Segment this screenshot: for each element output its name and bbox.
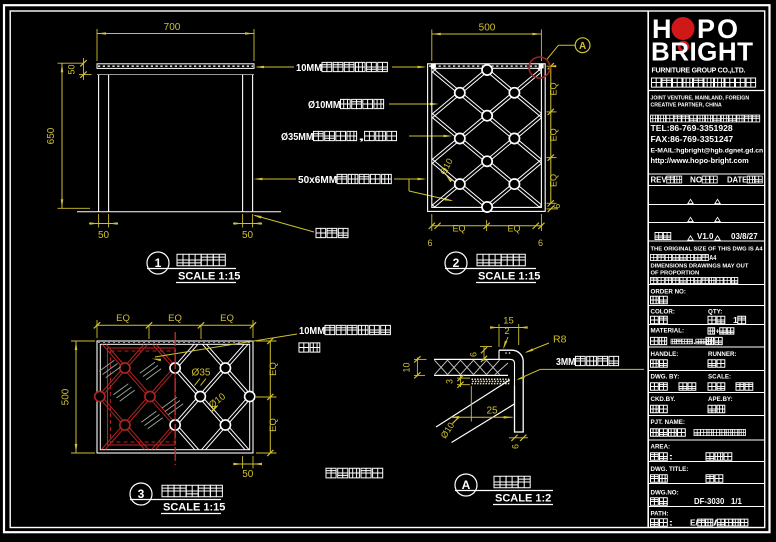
svg-text:HANDLE:: HANDLE: (651, 351, 679, 358)
svg-text:Ø10MM: Ø10MM (308, 99, 341, 111)
svg-text:EQ: EQ (116, 313, 130, 324)
svg-text:,: , (358, 131, 365, 143)
svg-text:SCALE 1:2: SCALE 1:2 (495, 493, 551, 505)
svg-text:500: 500 (479, 23, 496, 34)
svg-text:APE.BY:: APE.BY: (708, 396, 733, 403)
svg-text:ORDER NO:: ORDER NO: (651, 289, 686, 296)
svg-text:EQ: EQ (168, 313, 182, 324)
svg-text:COLOR:: COLOR: (651, 309, 675, 316)
svg-text:EQ: EQ (268, 362, 279, 376)
svg-text:A4: A4 (709, 255, 716, 262)
svg-text:EQ: EQ (452, 224, 465, 234)
svg-text:6: 6 (552, 204, 562, 209)
svg-text:JOINT VENTURE, MAINLAND, FOREI: JOINT VENTURE, MAINLAND, FOREIGN (651, 96, 750, 102)
svg-text:CKD.BY.: CKD.BY. (651, 396, 676, 403)
svg-text:SCALE 1:15: SCALE 1:15 (478, 271, 540, 283)
svg-text:650: 650 (46, 127, 57, 144)
svg-text:QTY:: QTY: (708, 309, 722, 316)
svg-text:RUNNER:: RUNNER: (708, 351, 737, 358)
svg-text::: : (669, 518, 674, 528)
svg-text:THE ORIGINAL SIZE OF THIS DWG: THE ORIGINAL SIZE OF THIS DWG IS A4 (651, 247, 764, 253)
svg-text:PJT. NAME:: PJT. NAME: (651, 419, 685, 426)
svg-text:REV: REV (651, 175, 668, 184)
svg-text:E-MAIL:hgbright@hgb.dgnet.gd.c: E-MAIL:hgbright@hgb.dgnet.gd.cn (651, 148, 764, 155)
svg-text:TEL:86-769-3351928: TEL:86-769-3351928 (651, 123, 733, 133)
svg-text:http://www.hopo-bright.com: http://www.hopo-bright.com (651, 156, 750, 165)
svg-text:R8: R8 (553, 334, 567, 346)
svg-text:6: 6 (538, 238, 543, 248)
svg-text:50: 50 (98, 230, 110, 241)
svg-text:SCALE:: SCALE: (708, 374, 731, 381)
svg-text:SCALE 1:15: SCALE 1:15 (163, 502, 225, 514)
svg-text:MATERIAL:: MATERIAL: (651, 328, 685, 335)
svg-text:AREA:: AREA: (651, 444, 671, 451)
svg-text:SCALE 1:15: SCALE 1:15 (178, 271, 240, 283)
svg-text:EQ: EQ (220, 313, 234, 324)
svg-text:6: 6 (511, 444, 521, 449)
svg-text:EQ: EQ (549, 128, 559, 141)
svg-text:10: 10 (402, 362, 412, 372)
svg-text:15: 15 (503, 316, 514, 327)
svg-text:700: 700 (164, 22, 181, 33)
svg-text:OF PROPORTION: OF PROPORTION (651, 271, 700, 277)
svg-text:CREATIVE PARTNER, CHINA: CREATIVE PARTNER, CHINA (651, 103, 723, 109)
svg-text:50: 50 (242, 230, 254, 241)
svg-text:EQ: EQ (549, 82, 559, 95)
svg-text:DIMENSIONS DRAWINGS MAY OUT: DIMENSIONS DRAWINGS MAY OUT (651, 264, 749, 270)
svg-text:50x6MM: 50x6MM (298, 174, 337, 186)
svg-text:+: + (716, 327, 720, 336)
svg-text:50: 50 (242, 469, 254, 480)
svg-text::: : (669, 452, 674, 462)
svg-text:V1.0: V1.0 (697, 232, 714, 241)
svg-text:Ø35MM: Ø35MM (281, 131, 314, 143)
svg-text:EQ: EQ (507, 224, 520, 234)
svg-text:A: A (579, 41, 586, 52)
svg-text:FURNITURE GROUP CO.,LTD.: FURNITURE GROUP CO.,LTD. (652, 68, 746, 75)
svg-text:50: 50 (67, 64, 77, 74)
svg-text:NO: NO (690, 175, 702, 184)
svg-text:DWG. BY:: DWG. BY: (651, 374, 680, 381)
svg-text:BRIGHT: BRIGHT (651, 37, 753, 67)
svg-text:DWG. TITLE:: DWG. TITLE: (651, 466, 689, 473)
svg-text:EQ: EQ (549, 174, 559, 187)
svg-text:10MM: 10MM (296, 62, 322, 74)
svg-text:03/8/27: 03/8/27 (731, 232, 758, 241)
svg-text:DF-3030: DF-3030 (694, 497, 725, 506)
svg-text:3: 3 (445, 379, 455, 384)
svg-text:EQ: EQ (268, 418, 279, 432)
svg-text:6: 6 (469, 352, 479, 357)
svg-text:DATE: DATE (727, 175, 747, 184)
svg-text:DWG.NO:: DWG.NO: (651, 490, 679, 497)
svg-text:1/1: 1/1 (731, 497, 743, 506)
svg-text:Ø35: Ø35 (192, 368, 211, 379)
svg-text:500: 500 (61, 388, 72, 405)
svg-text:PATH:: PATH: (651, 511, 669, 518)
svg-text:2: 2 (504, 326, 509, 337)
svg-text:FAX:86-769-3351247: FAX:86-769-3351247 (651, 134, 734, 144)
svg-text:25: 25 (486, 406, 498, 417)
svg-text:3MM: 3MM (556, 356, 576, 368)
svg-text:10MM: 10MM (299, 325, 325, 337)
svg-text:6: 6 (427, 238, 432, 248)
